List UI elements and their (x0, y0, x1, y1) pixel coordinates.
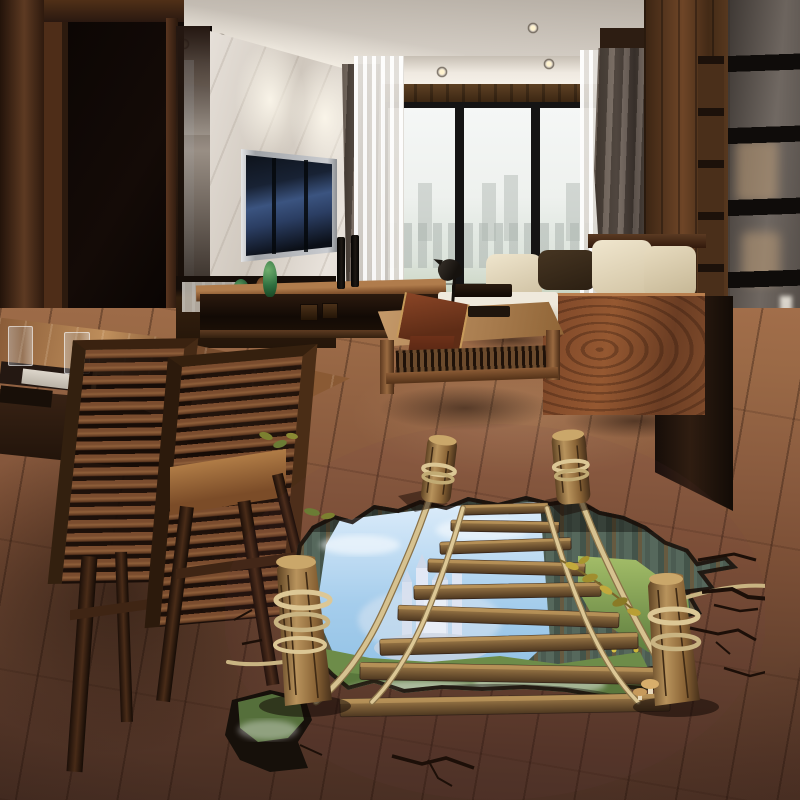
tea-set (468, 306, 510, 317)
storage-box (300, 304, 318, 321)
green-vase (263, 261, 277, 297)
tv-reflection-line (272, 158, 276, 254)
storage-box (322, 303, 338, 319)
window-beam (382, 84, 612, 102)
cloud (320, 535, 400, 555)
water-glass (8, 326, 33, 366)
spotlight-icon (436, 66, 448, 78)
floor-sticker (225, 420, 765, 800)
panel-reflection (184, 60, 194, 300)
green-vase (243, 271, 260, 298)
living-room-scene (0, 0, 800, 800)
spotlight-icon (543, 58, 555, 70)
wood-side-panel (543, 293, 705, 415)
tv-reflection-line (304, 160, 308, 252)
table-leg (380, 340, 394, 394)
dark-pillow (538, 250, 596, 290)
spotlight-icon (527, 22, 539, 34)
speaker (337, 237, 345, 289)
sofa-cushion (592, 240, 652, 294)
left-cabinet (0, 0, 44, 335)
door-beam (44, 0, 184, 22)
sofa-cushion (644, 246, 696, 298)
speaker (351, 235, 359, 287)
dark-doorway (68, 20, 172, 338)
tv-screen (246, 155, 332, 256)
tray (452, 284, 512, 297)
